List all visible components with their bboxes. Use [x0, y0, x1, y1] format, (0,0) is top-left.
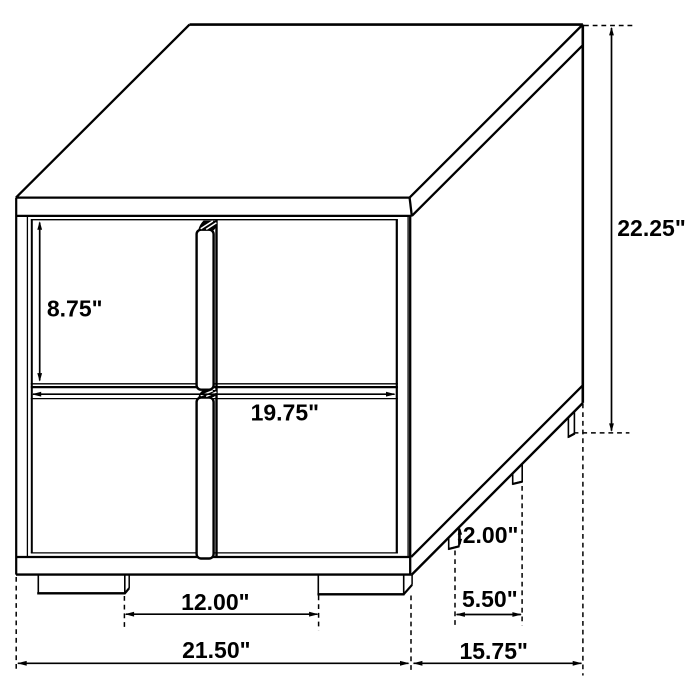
svg-text:2.00": 2.00" — [463, 522, 519, 548]
svg-text:5.50": 5.50" — [462, 586, 518, 612]
svg-text:19.75": 19.75" — [251, 400, 319, 426]
svg-text:8.75": 8.75" — [47, 295, 103, 321]
svg-text:15.75": 15.75" — [459, 638, 527, 664]
svg-text:22.25": 22.25" — [617, 215, 685, 241]
svg-text:21.50": 21.50" — [182, 637, 250, 663]
svg-text:12.00": 12.00" — [181, 589, 249, 615]
